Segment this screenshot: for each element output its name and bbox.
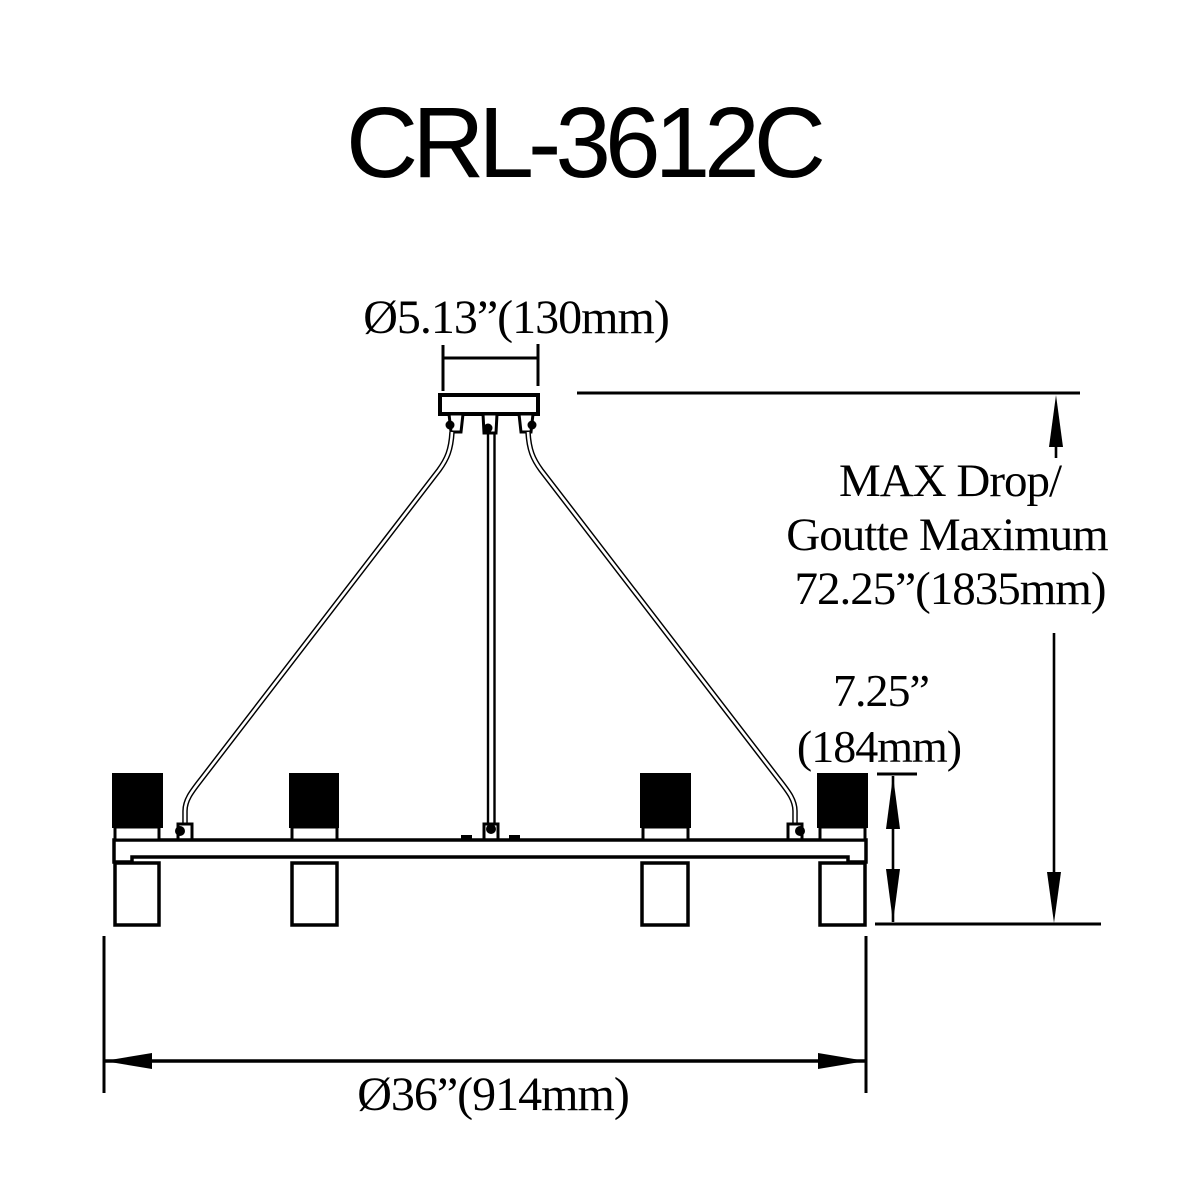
hanger-screw-left	[446, 421, 455, 430]
max-drop-arrow-up	[1049, 395, 1063, 447]
fixture-diameter-label: Ø36”(914mm)	[357, 1068, 629, 1121]
lamp-shade-bottom	[115, 863, 159, 925]
fitting-screw-right	[795, 826, 805, 836]
lamp-socket	[820, 827, 865, 840]
ring-detail-right	[509, 835, 520, 841]
lamp-shade-bottom	[642, 863, 688, 925]
right-cable	[528, 432, 795, 826]
lamp-shade-top	[641, 774, 690, 827]
fitting-screw-center	[486, 824, 496, 834]
left-cable	[185, 432, 452, 826]
center-rod	[488, 433, 495, 824]
fixture-height-label-mm: (184mm)	[797, 721, 961, 772]
ring-detail-left	[461, 835, 472, 841]
dimension-diagram: CRL-3612C Ø5.13”(130mm)	[0, 0, 1200, 1200]
canopy	[440, 395, 538, 414]
lamp-socket	[115, 827, 159, 840]
canopy-diameter-label: Ø5.13”(130mm)	[363, 291, 669, 344]
diameter-arrow-right	[818, 1053, 866, 1069]
max-drop-label-line1: MAX Drop/	[839, 455, 1063, 507]
fixture-height-arrow-down	[886, 869, 900, 922]
diameter-arrow-left	[104, 1053, 152, 1069]
ring-bar	[114, 840, 866, 862]
product-title: CRL-3612C	[346, 87, 823, 199]
hanger-screw-center	[484, 424, 493, 433]
canopy-hangers	[446, 414, 537, 433]
lamp-socket	[643, 827, 688, 840]
hanger-screw-right	[528, 421, 537, 430]
fixture-height-label-inches: 7.25”	[833, 665, 929, 716]
lamp-shade-top	[818, 774, 867, 827]
canopy-diameter-dimension	[443, 344, 538, 391]
lamp-shade-bottom	[820, 863, 865, 925]
lamp-shade-top	[113, 774, 162, 827]
fitting-screw-left	[175, 826, 185, 836]
max-drop-label-line2: Goutte Maximum	[786, 509, 1108, 561]
max-drop-arrow-down	[1047, 872, 1061, 923]
lamp-socket	[292, 827, 337, 840]
max-drop-label-line3: 72.25”(1835mm)	[794, 563, 1105, 615]
lamp-shade-bottom	[292, 863, 337, 925]
lamp-shade-top	[290, 774, 338, 827]
fixture-height-dimension	[877, 774, 917, 922]
fixture-height-arrow-up	[886, 776, 900, 829]
